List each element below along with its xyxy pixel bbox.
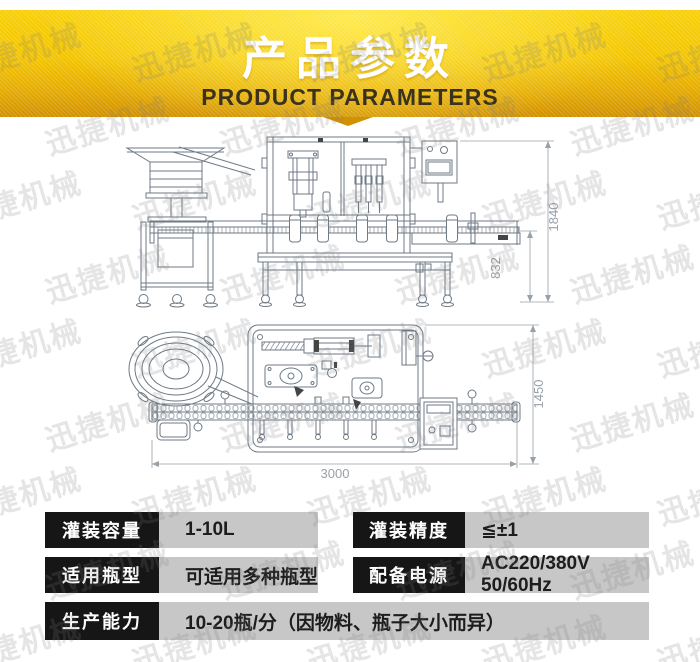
spec-value-production-capacity: 10-20瓶/分（因物料、瓶子大小而异） (159, 602, 649, 640)
top-strip (0, 0, 700, 10)
spec-label-filling-precision: 灌装精度 (353, 512, 465, 548)
control-panel (410, 141, 457, 202)
spec-value-bottle-type: 可适用多种瓶型 (159, 557, 318, 593)
motor-unit-1 (265, 365, 317, 387)
spec-label-bottle-type: 适用瓶型 (45, 557, 159, 593)
top-view-drawing: 3000 1450 (129, 325, 546, 481)
dim-832: 832 (488, 231, 537, 302)
spec-label-production-capacity: 生产能力 (45, 602, 159, 640)
dim-3000-label: 3000 (321, 466, 350, 481)
dim-1840-label: 1840 (546, 203, 561, 232)
technical-drawings: 1840 832 (0, 118, 700, 490)
spec-value-filling-precision: ≦±1 (465, 512, 649, 548)
watermark: 迅捷机械 (651, 602, 700, 662)
dim-832-label: 832 (488, 257, 503, 279)
outfeed-station (420, 398, 457, 449)
banner: 产品参数 PRODUCT PARAMETERS (0, 10, 700, 117)
spec-label-filling-capacity: 灌装容量 (45, 512, 159, 548)
front-view-drawing: 1840 832 (127, 137, 561, 307)
feeder-cart (137, 222, 218, 307)
page-subtitle: PRODUCT PARAMETERS (0, 84, 700, 111)
bowl-feeder (127, 147, 255, 222)
spec-value-power-supply: AC220/380V 50/60Hz (465, 557, 649, 593)
dim-1450-label: 1450 (531, 380, 546, 409)
spec-value-filling-capacity: 1-10L (159, 512, 318, 548)
machine-base (258, 253, 454, 307)
page-title: 产品参数 (0, 22, 700, 87)
capping-unit (288, 151, 318, 217)
spec-label-power-supply: 配备电源 (353, 557, 465, 593)
bowl-top (129, 332, 258, 406)
piston-unit (262, 331, 433, 365)
motor-unit-2 (294, 361, 382, 410)
filling-unit (323, 159, 386, 213)
